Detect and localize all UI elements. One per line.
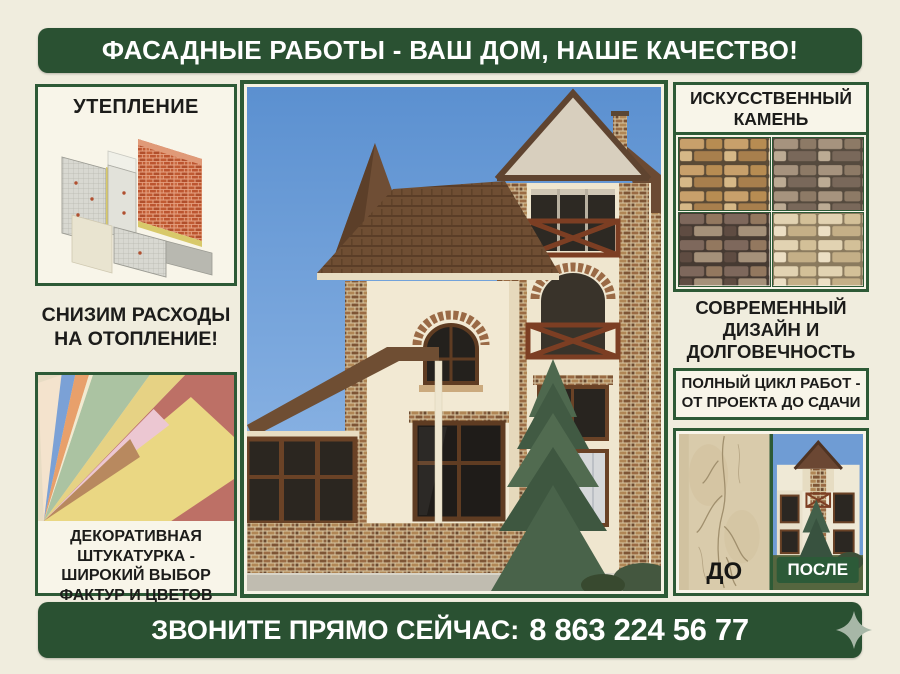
stone-sample-cream — [773, 213, 864, 285]
before-after-photos: ДО — [679, 434, 863, 590]
plaster-box: ДЕКОРАТИВНАЯ ШТУКАТУРКА - ШИРОКИЙ ВЫБОР … — [35, 372, 237, 596]
insulation-title: УТЕПЛЕНИЕ — [38, 87, 234, 119]
full-cycle-box: ПОЛНЫЙ ЦИКЛ РАБОТ - ОТ ПРОЕКТА ДО СДАЧИ — [673, 368, 869, 420]
insulation-box: УТЕПЛЕНИЕ — [35, 84, 237, 286]
phone-number: 8 863 224 56 77 — [529, 612, 749, 648]
house-photo-frame — [240, 80, 668, 598]
call-to-action-text: ЗВОНИТЕ ПРЯМО СЕЙЧАС: — [151, 615, 519, 646]
bottom-banner: ЗВОНИТЕ ПРЯМО СЕЙЧАС: 8 863 224 56 77 — [38, 602, 862, 658]
savings-text: СНИЗИМ РАСХОДЫ НА ОТОПЛЕНИЕ! — [32, 303, 240, 351]
facade-works-flyer: ФАСАДНЫЕ РАБОТЫ - ВАШ ДОМ, НАШЕ КАЧЕСТВО… — [0, 0, 900, 674]
artificial-stone-box: ИСКУССТВЕННЫЙ КАМЕНЬ — [673, 82, 869, 292]
stone-title: ИСКУССТВЕННЫЙ КАМЕНЬ — [676, 85, 866, 135]
sparkle-icon — [836, 611, 872, 649]
design-text: СОВРЕМЕННЫЙ ДИЗАЙН И ДОЛГОВЕЧНОСТЬ — [683, 297, 859, 364]
insulation-diagram-image — [48, 123, 224, 281]
top-banner-text: ФАСАДНЫЕ РАБОТЫ - ВАШ ДОМ, НАШЕ КАЧЕСТВО… — [102, 35, 798, 66]
before-photo: ДО — [679, 434, 770, 590]
stone-sample-dark-brown — [679, 213, 770, 285]
after-label: ПОСЛЕ — [776, 557, 859, 583]
stone-sample-grid — [676, 135, 866, 286]
plaster-samples-image — [38, 375, 234, 521]
house-photo — [244, 84, 664, 594]
stone-sample-gray-brown — [773, 138, 864, 210]
stone-sample-tan — [679, 138, 770, 210]
before-after-box: ДО — [673, 428, 869, 596]
plaster-caption: ДЕКОРАТИВНАЯ ШТУКАТУРКА - ШИРОКИЙ ВЫБОР … — [38, 521, 234, 593]
after-photo: ПОСЛЕ — [773, 434, 864, 590]
house-photo-image — [247, 87, 661, 591]
top-banner: ФАСАДНЫЕ РАБОТЫ - ВАШ ДОМ, НАШЕ КАЧЕСТВО… — [38, 28, 862, 73]
before-label: ДО — [679, 558, 770, 586]
